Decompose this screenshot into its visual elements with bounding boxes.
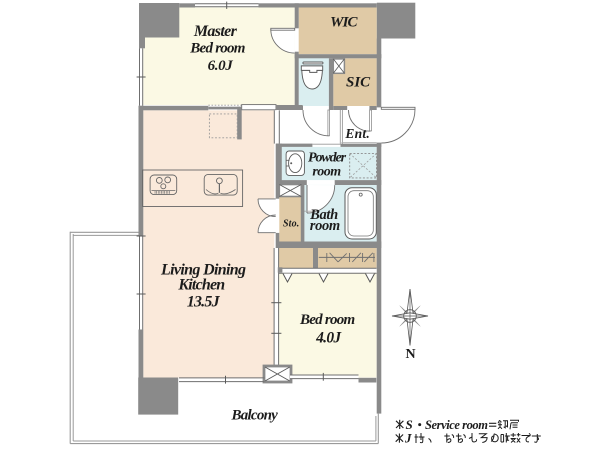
svg-text:Balcony: Balcony bbox=[231, 408, 279, 424]
svg-text:J: J bbox=[404, 431, 412, 446]
svg-text:WIC: WIC bbox=[330, 15, 358, 31]
svg-text:Bed room: Bed room bbox=[299, 312, 355, 328]
svg-text:13.5J: 13.5J bbox=[187, 294, 221, 311]
svg-text:N: N bbox=[405, 347, 415, 362]
svg-text:room: room bbox=[312, 164, 341, 179]
svg-text:Bed room: Bed room bbox=[189, 41, 245, 57]
svg-text:SIC: SIC bbox=[346, 74, 371, 90]
svg-text:Service room: Service room bbox=[425, 418, 488, 432]
svg-text:Kitchen: Kitchen bbox=[177, 277, 225, 294]
svg-text:Ent.: Ent. bbox=[344, 126, 370, 141]
svg-text:Master: Master bbox=[193, 23, 238, 40]
svg-text:6.0J: 6.0J bbox=[208, 58, 234, 74]
svg-text:Sto.: Sto. bbox=[283, 219, 299, 230]
svg-text:4.0J: 4.0J bbox=[315, 329, 342, 346]
svg-text:room: room bbox=[310, 218, 340, 234]
